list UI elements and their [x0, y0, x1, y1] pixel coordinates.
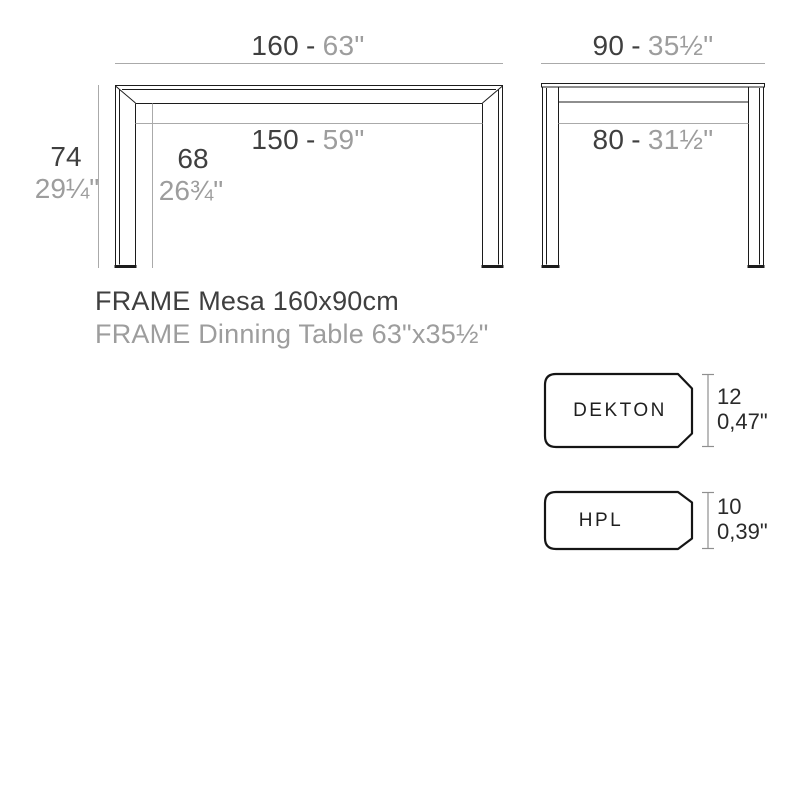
front-view-dimension-lines — [99, 64, 504, 269]
hpl-thickness-inches: 0,39" — [717, 521, 768, 543]
hpl-thickness-mm: 10 — [717, 496, 768, 518]
front-height-inches-label: 29¼" — [35, 175, 99, 203]
front-width-dimension: 160-63" — [251, 32, 364, 60]
side-depth-separator: - — [631, 30, 641, 61]
front-clearance-cm-label: 68 — [177, 145, 208, 173]
dekton-thickness-values: 12 0,47" — [717, 386, 768, 433]
side-inner-depth-dimension: 80-31½" — [592, 126, 713, 154]
front-right-miter-line — [483, 86, 503, 103]
side-inner-depth-cm: 80 — [592, 124, 624, 155]
side-inner-depth-inches: 31½" — [648, 124, 714, 155]
spec-sheet: 160-63" 150-59" 74 29¼" 68 26¾" 90-35½" … — [0, 0, 800, 800]
front-inner-width-inches: 59" — [323, 124, 365, 155]
product-title-metric: FRAME Mesa 160x90cm — [95, 288, 399, 315]
side-depth-inches: 35½" — [648, 30, 714, 61]
dekton-thickness-dim — [702, 375, 714, 447]
side-depth-cm: 90 — [592, 30, 624, 61]
front-inner-width-dimension: 150-59" — [251, 126, 364, 154]
side-inner-depth-separator: - — [631, 124, 641, 155]
front-width-separator: - — [306, 30, 316, 61]
front-inner-width-separator: - — [306, 124, 316, 155]
dekton-thickness-inches: 0,47" — [717, 411, 768, 433]
front-width-inches: 63" — [323, 30, 365, 61]
product-title-imperial: FRAME Dinning Table 63"x35½" — [95, 321, 488, 348]
front-clearance-inches-label: 26¾" — [159, 177, 223, 205]
side-view-drawing — [541, 84, 765, 269]
hpl-label: HPL — [579, 510, 623, 532]
front-left-miter-line — [116, 86, 136, 103]
front-inner-width-cm: 150 — [251, 124, 299, 155]
hpl-thickness-values: 10 0,39" — [717, 496, 768, 543]
front-height-cm-label: 74 — [50, 143, 81, 171]
side-depth-dimension: 90-35½" — [592, 32, 713, 60]
dekton-label: DEKTON — [573, 400, 667, 422]
front-width-cm: 160 — [251, 30, 299, 61]
side-view-dimension-lines — [541, 64, 765, 124]
dekton-thickness-mm: 12 — [717, 386, 768, 408]
technical-drawing — [0, 0, 800, 800]
hpl-thickness-dim — [702, 493, 714, 549]
